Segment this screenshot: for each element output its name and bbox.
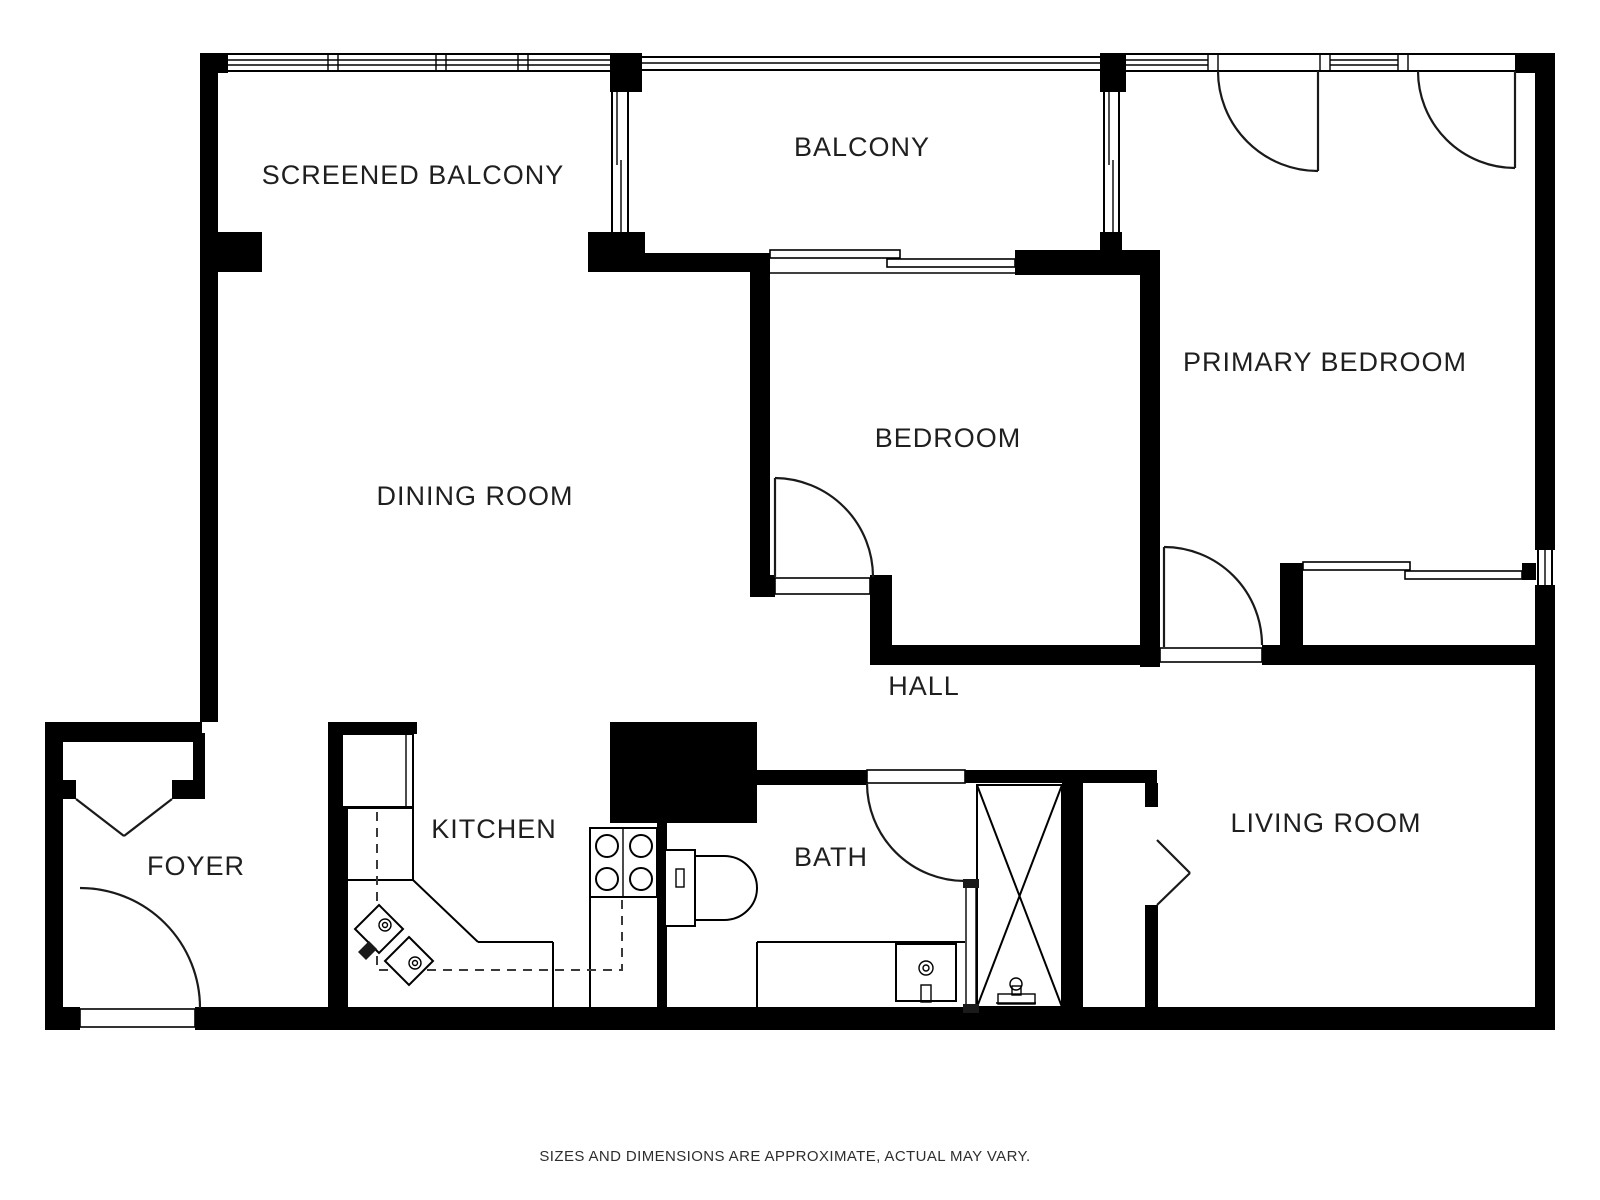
bedroom-door (775, 478, 873, 594)
room-label-bath: BATH (794, 842, 868, 872)
disclaimer-text: SIZES AND DIMENSIONS ARE APPROXIMATE, AC… (539, 1148, 1030, 1165)
bath-door (867, 770, 965, 881)
room-label-bedroom: BEDROOM (875, 423, 1022, 453)
floor-plan-canvas: SCREENED BALCONY BALCONY PRIMARY BEDROOM… (0, 0, 1600, 1200)
entry-door (80, 888, 200, 1027)
foyer-closet-double-doors (76, 799, 172, 836)
screened-balcony-side-window (612, 92, 628, 232)
primary-window-door-right (1418, 71, 1515, 168)
right-wall-window (1536, 550, 1554, 585)
vanity-sink (757, 942, 965, 1007)
shower-door (963, 879, 979, 1013)
shaft-block (610, 722, 757, 823)
toilet (665, 850, 757, 926)
screened-balcony-window-band (228, 54, 612, 71)
living-room-bifold-closet-door (1157, 840, 1190, 905)
sliding-balcony-door (770, 250, 1015, 273)
room-label-living-room: LIVING ROOM (1230, 808, 1421, 838)
room-label-kitchen: KITCHEN (431, 814, 557, 844)
room-label-primary-bedroom: PRIMARY BEDROOM (1183, 347, 1467, 377)
balcony-railing (642, 57, 1100, 70)
refrigerator (342, 734, 413, 807)
primary-window-door-left (1218, 71, 1318, 171)
room-label-hall: HALL (888, 671, 960, 701)
room-label-foyer: FOYER (147, 851, 245, 881)
primary-closet-sliding-doors (1303, 562, 1522, 579)
primary-bedroom-window-band (1122, 54, 1535, 71)
kitchen-corner-sink (355, 905, 433, 985)
primary-bedroom-door (1160, 547, 1262, 662)
stove-4-burner (590, 828, 657, 897)
room-label-dining-room: DINING ROOM (377, 481, 574, 511)
room-label-balcony: BALCONY (794, 132, 930, 162)
room-label-screened-balcony: SCREENED BALCONY (262, 160, 565, 190)
shower-enclosure (963, 785, 1062, 1013)
shower-valve-icon (996, 978, 1036, 1004)
balcony-side-window (1104, 92, 1119, 232)
floor-plan-page: SCREENED BALCONY BALCONY PRIMARY BEDROOM… (0, 0, 1600, 1200)
walls (45, 53, 1555, 1030)
